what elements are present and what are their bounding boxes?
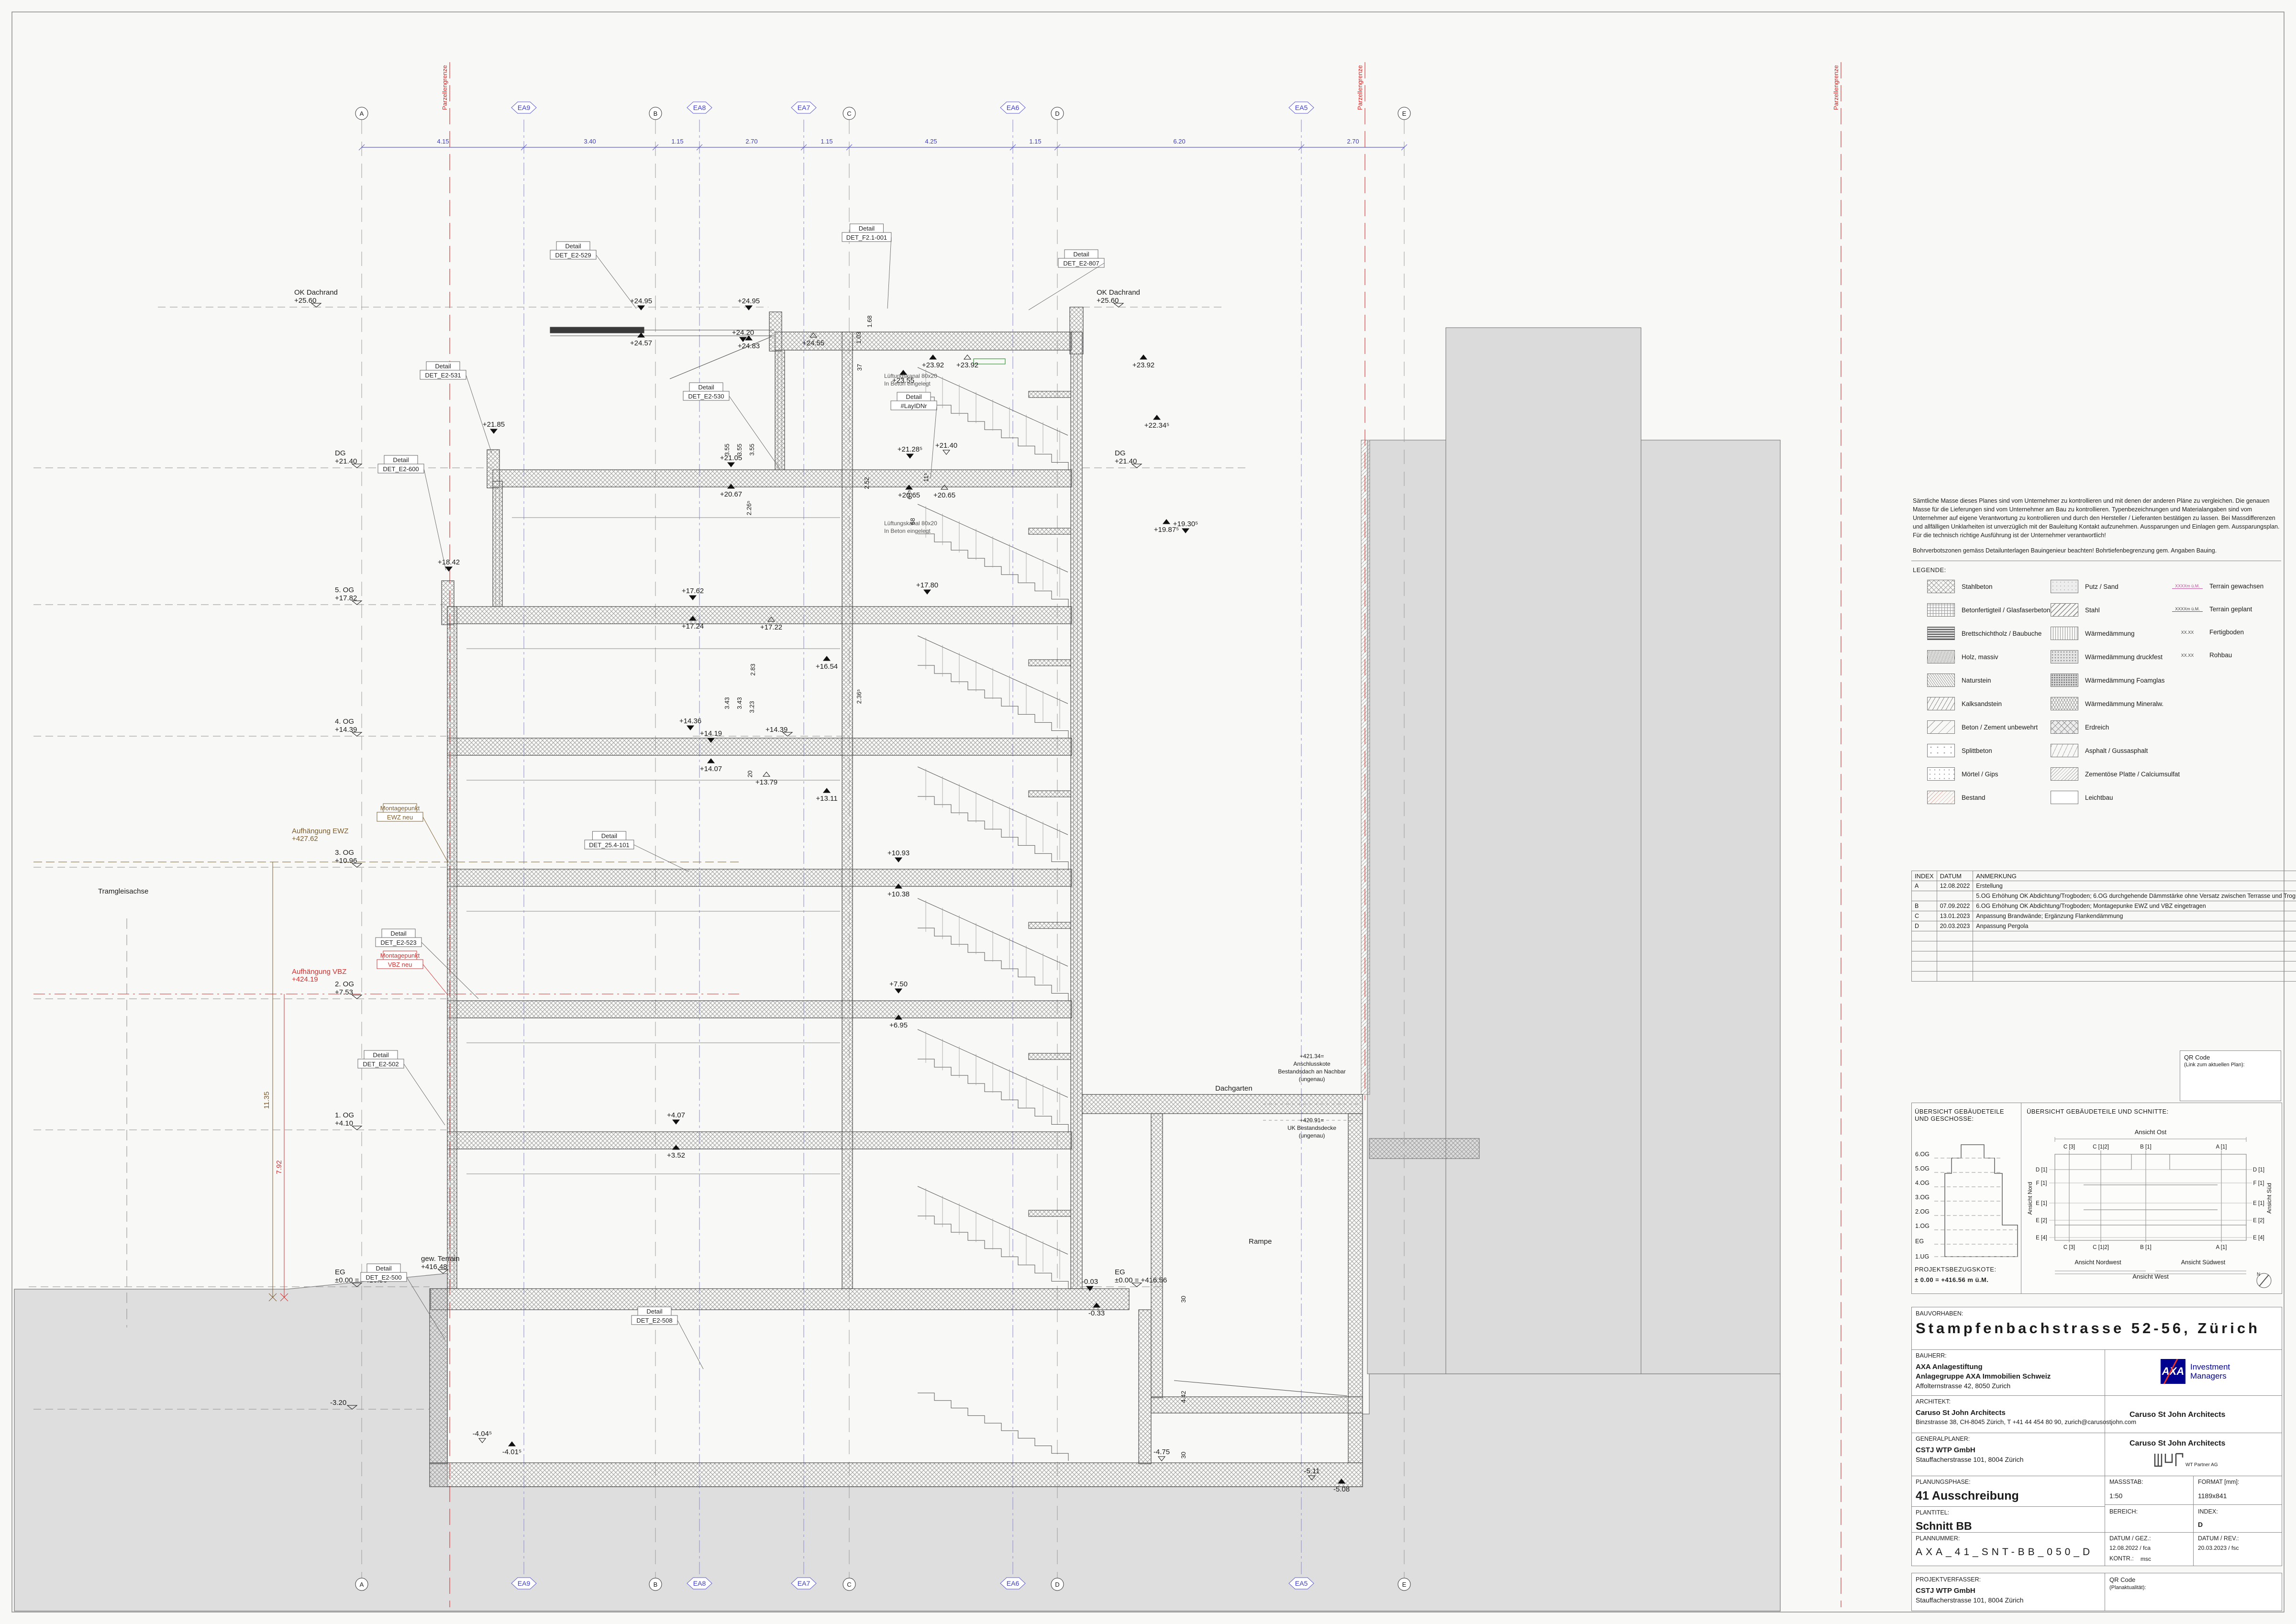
level-triangle: [708, 759, 714, 763]
revision-row: A12.08.2022Erstellungfca: [1912, 881, 2296, 891]
detail-leader: [423, 817, 448, 862]
elevation-marker: +20.67: [720, 490, 742, 498]
view-bracket: [2055, 1137, 2246, 1274]
revision-cell: Anpassung Brandwände; Ergänzung Flankend…: [1973, 911, 2296, 921]
elevation-marker: +24.20: [732, 329, 754, 337]
drawing-text: 20: [746, 771, 754, 777]
revision-cell: D: [1912, 921, 1937, 931]
drawing-text: 3.43: [723, 697, 731, 709]
project-title: Stampfenbachstrasse 52-56, Zürich: [1916, 1320, 2260, 1337]
verfasser-label: PROJEKTVERFASSER:: [1916, 1576, 1981, 1583]
general-notes: Sämtliche Masse dieses Planes sind vom U…: [1913, 497, 2281, 555]
revision-cell: [1973, 941, 2296, 951]
floor-label: 1. OG: [335, 1111, 354, 1119]
legend-label: Kalksandstein: [1962, 700, 2002, 707]
revision-cell: [1937, 972, 1973, 982]
wd-druckfest-swatch-icon: [2051, 650, 2078, 663]
revision-cell: 20.03.2023: [1937, 921, 1973, 931]
elevation-marker: -5.08: [1333, 1485, 1350, 1493]
legend-label: Beton / Zement unbewehrt: [1962, 724, 2038, 731]
floor-elevation: -3.20: [330, 1399, 346, 1407]
drawing-text: 2.52: [863, 477, 870, 489]
north-compass: N: [2257, 1272, 2271, 1288]
detail-title: Detail: [646, 1308, 662, 1315]
stair-flight: [918, 1059, 1068, 1133]
legend-label: Wärmedämmung Foamglas: [2085, 677, 2165, 684]
svg-text:N: N: [2257, 1272, 2260, 1277]
grid-letter: D: [1055, 1581, 1059, 1588]
elevation-marker: +14.19: [700, 729, 722, 738]
grid-axis-label: EA9: [518, 1580, 531, 1587]
legend-label: Terrain gewachsen: [2209, 583, 2263, 590]
legend-item: XXXXm ü.M.Terrain gewachsen: [2172, 583, 2263, 590]
overview-floor-label: 4.OG: [1915, 1180, 1930, 1186]
grid-letter: E: [1402, 1581, 1407, 1588]
grid-axis-label: EA8: [693, 104, 706, 111]
holz-massiv-swatch-icon: [1927, 650, 1955, 663]
revision-cell: [1973, 951, 2296, 961]
legend-item: Wärmedämmung: [2051, 627, 2135, 640]
drawing-text: +427.62: [292, 835, 318, 843]
revision-cell: 12.08.2022: [1937, 881, 1973, 891]
level-triangle: [1182, 529, 1189, 533]
level-triangle: [930, 355, 936, 359]
asphalt-swatch-icon: [2051, 744, 2078, 757]
revision-row: [1912, 972, 2296, 982]
legend-label: Splittbeton: [1962, 747, 1992, 754]
level-triangle: [1163, 519, 1170, 524]
plannummer-value: AXA_41_SNT-BB_050_D: [1916, 1547, 2093, 1558]
revision-cell: [1912, 931, 1937, 941]
revision-cell: 6.OG Erhöhung OK Abdichtung/Trogboden; M…: [1973, 901, 2296, 911]
floor-label: 4. OG: [335, 718, 354, 726]
existing-slab-hatch: [1369, 1138, 1479, 1159]
level-triangle: [1158, 1457, 1165, 1461]
overview-floor-label: 3.OG: [1915, 1194, 1930, 1201]
legend-label: Wärmedämmung Mineralw.: [2085, 700, 2163, 707]
detail-title: Detail: [373, 1051, 388, 1059]
drawing-text: Aufhängung VBZ: [292, 968, 346, 976]
legend-label: Asphalt / Gussasphalt: [2085, 747, 2148, 754]
parcel-boundary-label: Parzellengrenze: [441, 65, 448, 110]
view-label: Ansicht Südwest: [2181, 1259, 2226, 1266]
legend-item: Leichtbau: [2051, 791, 2113, 804]
drawing-text: +424.19: [292, 975, 318, 983]
legend-item: Stahlbeton: [1927, 580, 1993, 593]
stair-landing: [1029, 391, 1071, 398]
elevation-marker: -5.11: [1304, 1467, 1320, 1475]
legend-label: Putz / Sand: [2085, 583, 2119, 590]
level-triangle: [943, 450, 950, 454]
legend-item: Asphalt / Gussasphalt: [2051, 744, 2148, 757]
drawing-text: Tramgleisachse: [98, 887, 148, 895]
floor-label: EG: [1115, 1268, 1125, 1276]
bauherr-name: AXA Anlagestiftung: [1916, 1363, 1983, 1371]
overview-floor-label: 6.OG: [1915, 1151, 1930, 1158]
qr-box-plan: QR Code (Link zum aktuellen Plan):: [2180, 1050, 2281, 1101]
divider: [1911, 561, 2281, 561]
erdreich-swatch-icon: [2051, 720, 2078, 734]
level-triangle: [352, 1126, 362, 1130]
detail-title: Detail: [1073, 251, 1089, 258]
legend-item: XX.XXFertigboden: [2172, 629, 2244, 636]
verfasser-name: CSTJ WTP GmbH: [1916, 1587, 1975, 1595]
dimension-value: 3.40: [584, 138, 596, 145]
elevation-marker: +7.50: [889, 980, 908, 988]
view-label: Ansicht Nord: [2027, 1182, 2033, 1215]
naturstein-swatch-icon: [1927, 674, 1955, 687]
axa-logo-square: AXA: [2161, 1359, 2185, 1384]
sheet-background: AABBCCDDEEEA9EA9EA8EA8EA7EA7EA6EA6EA5EA5…: [0, 0, 2296, 1624]
detail-ref: DET_E2-523: [380, 939, 416, 946]
legend-label: Holz, massiv: [1962, 653, 1998, 661]
stair-landing: [1029, 528, 1071, 534]
section-line-label: E [1]: [2036, 1201, 2047, 1206]
drawing-text: 3.23: [748, 701, 755, 713]
stair-flight: [918, 1216, 1068, 1290]
drawing-text: 4.42: [1180, 1391, 1187, 1403]
drawing-text: Anschlusskote: [1293, 1061, 1331, 1067]
detail-title: Detail: [565, 243, 581, 250]
drawing-text: (ungenau): [1299, 1132, 1325, 1139]
legend-label: Mörtel / Gips: [1962, 771, 1998, 778]
elevation-marker: +10.93: [887, 849, 910, 857]
elevation-marker: +21.85: [483, 420, 505, 429]
verfasser-address: Stauffacherstrasse 101, 8004 Zürich: [1916, 1596, 2023, 1604]
level-triangle: [479, 1438, 486, 1443]
section-line-label: D [1]: [2036, 1167, 2047, 1173]
waermedaemmung-swatch-icon: [2051, 627, 2078, 640]
qr-label: QR Code: [2184, 1054, 2281, 1061]
section-line-label: C [3]: [2063, 1144, 2075, 1150]
elevation-marker: +17.80: [916, 581, 938, 589]
drawing-text: (ungenau): [1299, 1076, 1325, 1083]
legend-item: Splittbeton: [1927, 744, 1992, 757]
revision-cell: [1937, 951, 1973, 961]
bauherr-label: BAUHERR:: [1916, 1352, 1947, 1359]
elevation-marker: +18.42: [438, 558, 460, 566]
wt-partner-label: WT Partner AG: [2185, 1462, 2218, 1468]
neighbour-building: [1361, 328, 1780, 1374]
grid-axis-label: EA7: [798, 1580, 810, 1587]
elevation-marker: +3.52: [667, 1151, 685, 1160]
floor-label: 3. OG: [335, 849, 354, 857]
elevation-marker: +17.62: [682, 587, 704, 595]
title-block: BAUVORHABEN: Stampfenbachstrasse 52-56, …: [1911, 1307, 2282, 1566]
grid-axis-label: EA6: [1007, 104, 1020, 111]
dimension-value: 4.15: [437, 138, 449, 145]
drawing-text: 63⁵: [906, 490, 913, 499]
drawing-text: 3.55: [723, 443, 731, 455]
legend-item: Naturstein: [1927, 674, 1991, 687]
floor-profile-lines: [1934, 1158, 2018, 1257]
overview-floor-label: 2.OG: [1915, 1208, 1930, 1215]
level-triangle: [964, 355, 971, 359]
dimension-value: 2.70: [745, 138, 757, 145]
revision-table: INDEXDATUMANMERKUNGGEZ.A12.08.2022Erstel…: [1911, 871, 2296, 982]
dimension-value: 4.25: [925, 138, 937, 145]
stair-landing: [1029, 791, 1071, 797]
detail-title: Montagepunkt: [380, 952, 420, 959]
legend-item: XX.XXRohbau: [2172, 652, 2232, 659]
section-line-label: C [1|2]: [2093, 1245, 2109, 1250]
detail-title: Detail: [376, 1265, 391, 1272]
revision-cell: [1937, 961, 1973, 972]
kalksandstein-swatch-icon: [1927, 697, 1955, 710]
datum-gez-value: 12.08.2022 / fca: [2109, 1545, 2151, 1551]
level-triangle: [907, 454, 913, 458]
grid-letter: D: [1055, 110, 1059, 117]
elevation-marker: +23.92: [1132, 361, 1154, 369]
detail-ref: DET_F2.1-001: [846, 234, 887, 241]
massstab-value: 1:50: [2109, 1492, 2122, 1500]
architekt-label: ARCHITEKT:: [1916, 1398, 1951, 1405]
notes-paragraph: Sämtliche Masse dieses Planes sind vom U…: [1913, 497, 2281, 540]
legend-item: Mörtel / Gips: [1927, 767, 1998, 781]
grid-letter: B: [654, 110, 658, 117]
section-line-label: E [4]: [2253, 1235, 2264, 1241]
legend-item: Kalksandstein: [1927, 697, 2002, 710]
grid-axis-label: EA6: [1007, 1580, 1020, 1587]
elevation-marker: +19.30⁵: [1173, 520, 1198, 528]
wd-foamglas-swatch-icon: [2051, 674, 2078, 687]
legend-item: Wärmedämmung Mineralw.: [2051, 697, 2163, 710]
detail-leader: [466, 375, 492, 453]
brettschichtholz-swatch-icon: [1927, 627, 1955, 640]
grid-axis-label: EA8: [693, 1580, 706, 1587]
level-triangle: [823, 788, 830, 793]
legend-item: XXXXm ü.M.Terrain geplant: [2172, 606, 2252, 613]
architekt-name: Caruso St John Architects: [1916, 1409, 2006, 1417]
revision-cell: [1912, 951, 1937, 961]
grid-letter: C: [847, 110, 851, 117]
overview-diagrams: 6.OG5.OG4.OG3.OG2.OG1.OGEG1.UG C [3]C [3…: [1911, 1103, 2281, 1293]
stair-landing: [1029, 922, 1071, 928]
terrain-geplant-symbol-icon: XXXXm ü.M.: [2172, 607, 2203, 612]
bauvorhaben-label: BAUVORHABEN:: [1916, 1310, 1963, 1317]
view-label: Ansicht Ost: [2135, 1128, 2167, 1136]
elevation-marker: +13.79: [755, 778, 777, 786]
detail-leader: [887, 237, 891, 309]
revision-cell: [1937, 891, 1973, 901]
stahl-swatch-icon: [2051, 603, 2078, 617]
detail-title: Detail: [601, 832, 617, 840]
legend-item: Bestand: [1927, 791, 1985, 804]
generalplaner-name: CSTJ WTP GmbH: [1916, 1446, 1975, 1454]
legend-label: Betonfertigteil / Glasfaserbeton: [1962, 607, 2050, 614]
level-triangle: [687, 726, 694, 730]
stahlbeton-swatch-icon: [1927, 580, 1955, 593]
level-triangle: [740, 337, 746, 342]
floor-profile-labels: 6.OG5.OG4.OG3.OG2.OG1.OGEG1.UG: [1915, 1151, 1930, 1260]
level-triangle: [895, 989, 902, 993]
section-line-label: B [1]: [2140, 1144, 2152, 1150]
overview-floor-label: 5.OG: [1915, 1165, 1930, 1172]
floor-label: DG: [335, 449, 346, 457]
section-line-label: D [1]: [2253, 1167, 2264, 1173]
revision-row: [1912, 931, 2296, 941]
floor-label: DG: [1115, 449, 1126, 457]
revision-cell: [1912, 941, 1937, 951]
detail-leader: [423, 964, 448, 995]
detail-ref: DET_E2-502: [363, 1061, 399, 1068]
section-line-label: F [1]: [2253, 1181, 2264, 1186]
drawing-text: 68: [909, 518, 916, 525]
drawing-text: 7.92: [275, 1160, 283, 1174]
elevation-marker: +24.95: [738, 297, 760, 305]
elevation-marker: -4.75: [1154, 1448, 1170, 1456]
elevation-marker: +4.07: [667, 1111, 685, 1119]
plantitel-label: PLANTITEL:: [1916, 1509, 1949, 1516]
phase-label: PLANUNGSPHASE:: [1916, 1479, 1971, 1485]
revision-row: [1912, 941, 2296, 951]
revision-row: 5.OG Erhöhung OK Abdichtung/Trogboden; 6…: [1912, 891, 2296, 901]
elevation-marker: +23.92: [956, 361, 978, 369]
bauherr-name2: Anlagegruppe AXA Immobilien Schweiz: [1916, 1372, 2051, 1381]
legend-item: Erdreich: [2051, 720, 2109, 734]
drawing-text: 2.26⁵: [745, 501, 753, 516]
stair-flight: [918, 397, 1068, 470]
legend-label: Wärmedämmung: [2085, 630, 2135, 637]
drawing-text: 2.83: [749, 663, 756, 675]
detail-title: Detail: [393, 456, 409, 464]
level-triangle: [745, 306, 752, 310]
legend-item: Wärmedämmung Foamglas: [2051, 674, 2165, 687]
overview-floor-label: EG: [1915, 1238, 1924, 1245]
dimension-value: 1.15: [821, 138, 832, 145]
bestand-swatch-icon: [1927, 791, 1955, 804]
dimension-value: 1.15: [671, 138, 683, 145]
elevation-marker: -4.04⁵: [473, 1430, 492, 1438]
floor-label: 2. OG: [335, 980, 354, 988]
legend-label: Fertigboden: [2209, 629, 2244, 636]
detail-ref: VBZ neu: [388, 961, 412, 968]
detail-ref: DET_E2-500: [366, 1274, 401, 1281]
dimension-value: 6.20: [1173, 138, 1185, 145]
drawing-text: 3.55: [748, 443, 755, 455]
dimension-value: 1.15: [1029, 138, 1041, 145]
stair-landing: [1029, 660, 1071, 666]
section-line-label: F [1]: [2036, 1181, 2047, 1186]
revision-row: C13.01.2023Anpassung Brandwände; Ergänzu…: [1912, 911, 2296, 921]
elevation-marker: -0.03: [1082, 1278, 1098, 1286]
level-triangle: [1154, 415, 1160, 420]
detail-ref: DET_E2-508: [636, 1317, 672, 1324]
revision-row: B07.09.20226.OG Erhöhung OK Abdichtung/T…: [1912, 901, 2296, 911]
level-triangle: [509, 1442, 515, 1446]
revision-cell: C: [1912, 911, 1937, 921]
detail-title: Detail: [859, 225, 875, 232]
revision-cell: 07.09.2022: [1937, 901, 1973, 911]
section-line-label: A [1]: [2216, 1144, 2227, 1150]
elevation-marker: +22.34⁵: [1144, 421, 1170, 430]
drawing-text: 2.36⁵: [855, 689, 863, 704]
rohbau-symbol-icon: XX.XX: [2172, 653, 2203, 658]
level-triangle: [673, 1120, 679, 1124]
legend-label: Brettschichtholz / Baubuche: [1962, 630, 2041, 637]
index-label: INDEX:: [2198, 1508, 2218, 1515]
terrain-gewachsen-symbol-icon: XXXXm ü.M.: [2172, 584, 2203, 589]
fertigboden-symbol-icon: XX.XX: [2172, 630, 2203, 635]
revision-cell: B: [1912, 901, 1937, 911]
legend-item: Stahl: [2051, 603, 2100, 617]
drawing-text: 3.43: [736, 697, 743, 709]
floor-label: gew. Terrain: [421, 1255, 460, 1263]
revision-row: [1912, 961, 2296, 972]
elevation-marker: +13.11: [816, 795, 837, 803]
drawing-text: 11⁵: [922, 473, 930, 482]
caruso-logo: Caruso St John Architects: [2130, 1411, 2225, 1419]
section-line-label: C [1|2]: [2093, 1144, 2109, 1150]
stair-flight: [918, 665, 1068, 739]
floor-profile: [1945, 1145, 2018, 1257]
legend-label: Terrain geplant: [2209, 606, 2252, 613]
detail-ref: DET_25.4-101: [589, 841, 630, 849]
drawing-text: Rampe: [1249, 1237, 1272, 1246]
projektverfasser-box: PROJEKTVERFASSER: CSTJ WTP GmbH Stauffac…: [1911, 1573, 2282, 1611]
legend-label: Erdreich: [2085, 724, 2109, 731]
drawing-text: In Beton eingelegt: [884, 380, 931, 387]
level-triangle: [445, 567, 452, 571]
elevation-marker: +10.38: [887, 890, 910, 898]
drawing-text: 11.35: [263, 1092, 271, 1109]
level-triangle: [638, 333, 644, 337]
bereich-label: BEREICH:: [2109, 1508, 2138, 1515]
legend-item: Betonfertigteil / Glasfaserbeton: [1927, 603, 2050, 617]
legend-label: Naturstein: [1962, 677, 1991, 684]
stair-flight: [918, 928, 1068, 1002]
drawing-text: 3.55: [736, 443, 743, 455]
revision-row: D20.03.2023Anpassung Pergolafsc: [1912, 921, 2296, 931]
detail-ref: DET_E2-600: [383, 465, 419, 473]
legend-item: Brettschichtholz / Baubuche: [1927, 627, 2041, 640]
grid-letter: C: [847, 1581, 851, 1588]
level-triangle: [352, 995, 362, 999]
parcel-boundary-label: Parzellengrenze: [1832, 65, 1840, 110]
kontr-value: msc: [2141, 1556, 2151, 1562]
legend-item: Putz / Sand: [2051, 580, 2119, 593]
drawing-text: Lüftungskanal 80x20: [884, 373, 937, 379]
legend-label: Wärmedämmung druckfest: [2085, 653, 2163, 661]
qr-sub-2: (Planaktualität):: [2109, 1585, 2146, 1591]
elevation-marker: +16.54: [816, 663, 838, 671]
grid-letter: A: [360, 1581, 364, 1588]
legend-label: Stahlbeton: [1962, 583, 1993, 590]
drawing-text: Dachgarten: [1215, 1084, 1253, 1093]
plan-outline: [2055, 1154, 2246, 1240]
elevation-marker: -4.01⁵: [502, 1448, 521, 1456]
section-line-label: A [1]: [2216, 1245, 2227, 1250]
drawing-text: Bestandsdach an Nachbar: [1278, 1068, 1345, 1075]
revision-cell: [1912, 972, 1937, 982]
drawing-text: Aufhängung EWZ: [292, 827, 348, 835]
plan-sheet: { "titleblock": { "bauvorhaben_label": "…: [0, 0, 2296, 1624]
grid-axis-label: EA5: [1295, 104, 1308, 111]
plannummer-label: PLANNUMMER:: [1916, 1535, 1960, 1542]
elevation-marker: +21.40: [935, 442, 957, 450]
revision-cell: [1973, 972, 2296, 982]
view-label: Ansicht Nordwest: [2074, 1259, 2121, 1266]
elevation-marker: +24.55: [802, 339, 824, 347]
revision-header: ANMERKUNG: [1973, 871, 2296, 881]
detail-title: Detail: [906, 393, 921, 400]
floor-label: 5. OG: [335, 586, 354, 594]
stair-landing: [1029, 1210, 1071, 1216]
legend-label: Leichtbau: [2085, 794, 2113, 801]
format-value: 1189x841: [2198, 1492, 2227, 1500]
stair-flight: [918, 534, 1068, 607]
bauherr-address: Affolternstrasse 42, 8050 Zurich: [1916, 1382, 2010, 1390]
